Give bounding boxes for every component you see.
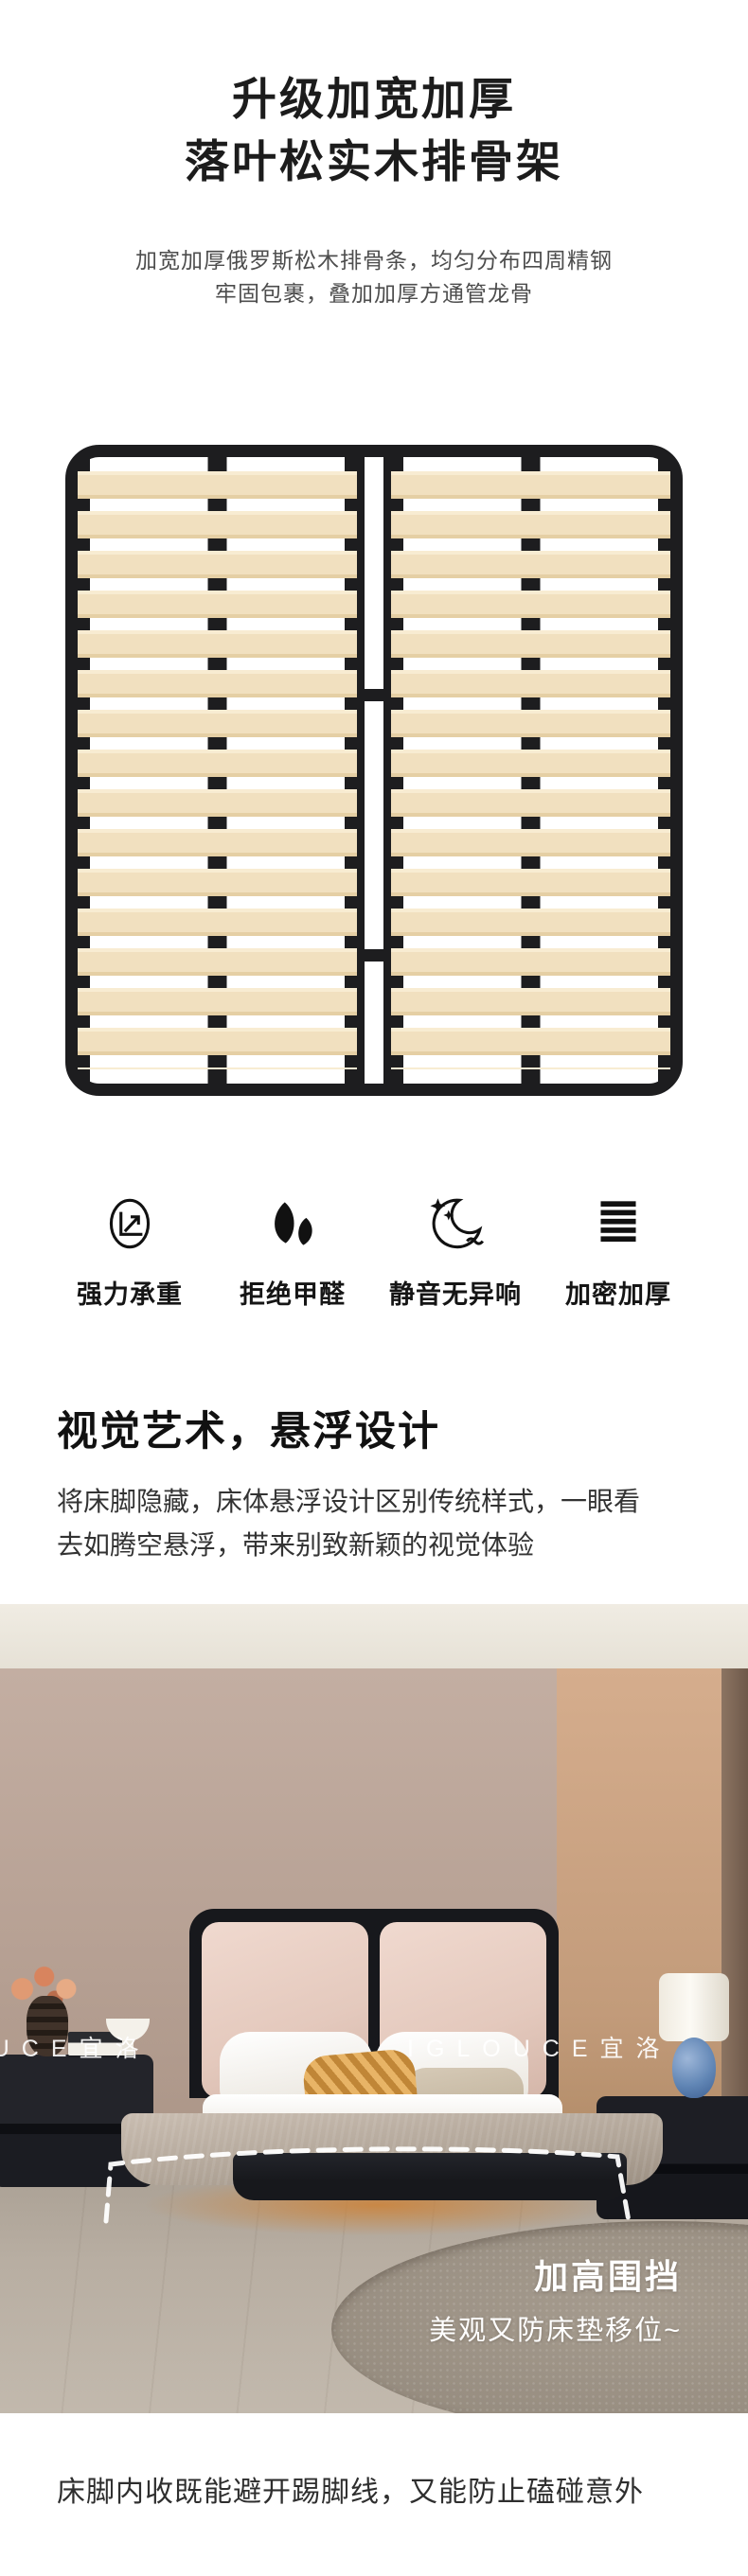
hero-subtitle: 加宽加厚俄罗斯松木排骨条，均匀分布四周精钢 牢固包裹，叠加加厚方通管龙骨: [0, 244, 748, 310]
moon-quiet-icon: [422, 1189, 489, 1259]
center-rail-connector: [357, 949, 391, 962]
feature-silent: 静音无异响: [384, 1189, 526, 1311]
section-heading: 视觉艺术，悬浮设计: [57, 1399, 701, 1457]
slat-frame-center-rail: [357, 457, 391, 1084]
product-detail-page: 升级加宽加厚 落叶松实木排骨架 加宽加厚俄罗斯松木排骨条，均匀分布四周精钢 牢固…: [0, 0, 748, 2576]
slat-frame-image: [65, 445, 683, 1096]
floating-design-section: 视觉艺术，悬浮设计 将床脚隐藏，床体悬浮设计区别传统样式，一眼看 去如腾空悬浮，…: [57, 1399, 701, 1567]
hero-section: 升级加宽加厚 落叶松实木排骨架 加宽加厚俄罗斯松木排骨条，均匀分布四周精钢 牢固…: [0, 0, 748, 310]
brand-watermark: IGLOUCE宜洛: [0, 2030, 151, 2064]
section-body: 将床脚隐藏，床体悬浮设计区别传统样式，一眼看 去如腾空悬浮，带来别致新颖的视觉体…: [57, 1480, 701, 1567]
section-body-line1: 将床脚隐藏，床体悬浮设计区别传统样式，一眼看: [57, 1480, 701, 1524]
feature-label: 静音无异响: [389, 1274, 522, 1311]
load-bearing-icon: [98, 1189, 161, 1259]
callout-subtitle: 美观又防床垫移位~: [429, 2308, 682, 2348]
section-body-line2: 去如腾空悬浮，带来别致新颖的视觉体验: [57, 1524, 701, 1567]
hero-title-line1: 升级加宽加厚: [0, 68, 748, 131]
feature-dense-thick: 加密加厚: [547, 1189, 689, 1311]
hero-title: 升级加宽加厚 落叶松实木排骨架: [0, 68, 748, 193]
lamp-base: [672, 2038, 716, 2098]
wall-corner-shadow: [721, 1668, 748, 2161]
hero-subtitle-line1: 加宽加厚俄罗斯松木排骨条，均匀分布四周精钢: [0, 244, 748, 277]
brand-watermark: IGLOUCE宜洛: [407, 2030, 672, 2064]
bedroom-photo: IGLOUCE宜洛 IGLOUCE宜洛 加高围挡 美观又防床垫移位~: [0, 1604, 748, 2413]
slat-frame-right-half: [391, 457, 670, 1084]
center-rail-connector: [357, 689, 391, 701]
hero-subtitle-line2: 牢固包裹，叠加加厚方通管龙骨: [0, 277, 748, 310]
feature-label: 拒绝甲醛: [240, 1274, 346, 1311]
feature-no-formaldehyde: 拒绝甲醛: [222, 1189, 364, 1311]
footer-caption: 床脚内收既能避开踢脚线，又能防止磕碰意外: [57, 2468, 644, 2510]
hero-title-line2: 落叶松实木排骨架: [0, 131, 748, 193]
slat-frame-left-half: [78, 457, 357, 1084]
ceiling: [0, 1604, 748, 1668]
feature-load-bearing: 强力承重: [59, 1189, 201, 1311]
feature-row: 强力承重 拒绝甲醛 静音无异响: [0, 1189, 748, 1311]
feature-label: 强力承重: [77, 1274, 183, 1311]
leaf-icon: [261, 1189, 324, 1259]
photo-callout: 加高围挡 美观又防床垫移位~: [429, 2250, 682, 2348]
layers-icon: [590, 1189, 647, 1259]
bed-base: [233, 2153, 627, 2200]
feature-label: 加密加厚: [565, 1274, 671, 1311]
callout-title: 加高围挡: [429, 2250, 682, 2299]
